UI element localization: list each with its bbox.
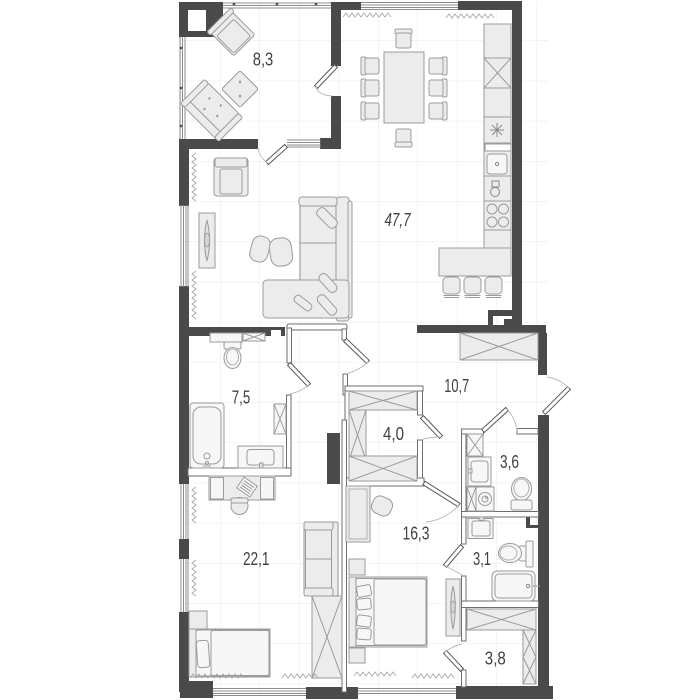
svg-text:3,8: 3,8 (485, 649, 506, 669)
svg-text:3,6: 3,6 (500, 452, 519, 472)
svg-text:22,1: 22,1 (243, 549, 270, 569)
svg-text:4,0: 4,0 (383, 424, 404, 444)
svg-text:16,3: 16,3 (403, 524, 430, 544)
svg-text:7,5: 7,5 (232, 388, 251, 408)
svg-text:47,7: 47,7 (385, 210, 412, 230)
svg-text:10,7: 10,7 (444, 376, 469, 396)
svg-text:3,1: 3,1 (473, 549, 491, 569)
svg-text:8,3: 8,3 (253, 50, 274, 70)
